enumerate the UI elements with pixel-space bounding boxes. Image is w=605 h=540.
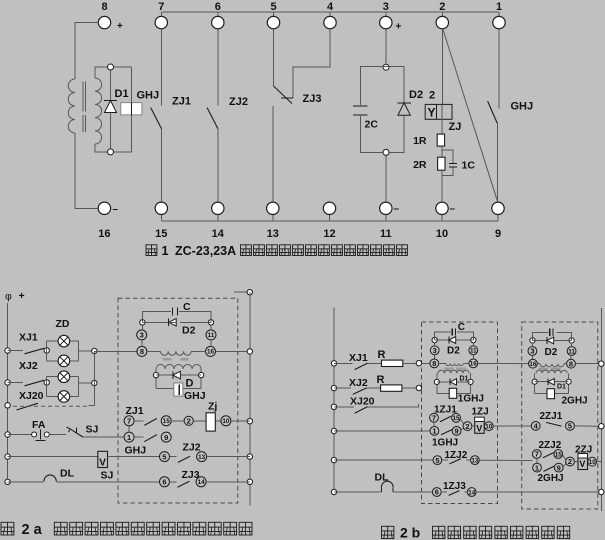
- svg-text:ZJ3: ZJ3: [303, 93, 322, 105]
- svg-text:C: C: [183, 301, 191, 313]
- svg-text:1: 1: [496, 1, 502, 13]
- svg-text:GHJ: GHJ: [511, 101, 534, 113]
- svg-text:1: 1: [162, 244, 169, 258]
- svg-text:ZJ: ZJ: [449, 121, 462, 133]
- svg-text:15: 15: [452, 415, 460, 422]
- svg-text:XJ2: XJ2: [19, 360, 38, 372]
- svg-text:10: 10: [222, 418, 230, 425]
- svg-text:5: 5: [568, 422, 572, 431]
- svg-text:14: 14: [198, 479, 206, 486]
- svg-text:XJ1: XJ1: [19, 332, 38, 344]
- svg-text:7: 7: [535, 450, 539, 459]
- svg-text:9: 9: [557, 463, 561, 472]
- svg-text:V: V: [476, 423, 482, 433]
- svg-text:3: 3: [433, 346, 437, 355]
- svg-text:DL: DL: [375, 472, 390, 484]
- svg-text:1: 1: [432, 427, 436, 436]
- svg-text:10: 10: [589, 459, 597, 466]
- svg-text:2R: 2R: [413, 159, 427, 171]
- svg-text:1R: 1R: [413, 135, 427, 147]
- svg-text:1GHJ: 1GHJ: [458, 394, 484, 405]
- svg-text:D2: D2: [447, 345, 460, 356]
- svg-text:7: 7: [158, 1, 164, 13]
- svg-text:2: 2: [429, 90, 435, 102]
- svg-text:16: 16: [207, 349, 215, 356]
- svg-text:2GHJ: 2GHJ: [562, 396, 588, 407]
- svg-text:ZJ1: ZJ1: [172, 96, 191, 108]
- svg-text:–: –: [394, 204, 400, 215]
- svg-text:–: –: [113, 204, 119, 215]
- svg-text:3: 3: [140, 331, 144, 340]
- svg-text:13: 13: [471, 457, 479, 464]
- svg-text:11: 11: [568, 348, 575, 355]
- svg-text:1C: 1C: [462, 160, 476, 172]
- svg-text:D1: D1: [460, 376, 469, 383]
- svg-text:ZJ1: ZJ1: [126, 405, 144, 417]
- svg-text:6: 6: [215, 1, 221, 13]
- svg-text:7: 7: [432, 414, 436, 423]
- svg-text:D1: D1: [557, 384, 566, 391]
- svg-text:13: 13: [198, 454, 206, 461]
- svg-text:16: 16: [529, 361, 537, 368]
- svg-text:R: R: [378, 349, 386, 361]
- svg-text:XJ20: XJ20: [19, 390, 44, 402]
- svg-text:2ZJ1: 2ZJ1: [540, 411, 563, 422]
- svg-text:3: 3: [530, 347, 534, 356]
- svg-text:16: 16: [98, 228, 110, 240]
- svg-text:GHJ: GHJ: [125, 445, 147, 457]
- svg-text:ZC-23,23A: ZC-23,23A: [175, 244, 236, 258]
- svg-text:+: +: [19, 290, 25, 302]
- svg-text:2: 2: [439, 1, 445, 13]
- svg-text:R: R: [377, 374, 385, 386]
- svg-text:XJ1: XJ1: [349, 352, 368, 364]
- svg-text:15: 15: [555, 451, 563, 458]
- svg-text:2: 2: [568, 457, 572, 466]
- svg-text:D2: D2: [545, 347, 558, 358]
- svg-text:6: 6: [435, 488, 439, 497]
- svg-text:4: 4: [327, 1, 334, 13]
- svg-text:15: 15: [163, 418, 171, 425]
- svg-text:10: 10: [436, 228, 448, 240]
- svg-text:13: 13: [267, 228, 279, 240]
- svg-text:D1: D1: [115, 88, 129, 100]
- svg-text:9: 9: [495, 228, 501, 240]
- svg-text:SJ: SJ: [86, 424, 99, 436]
- svg-text:15: 15: [155, 228, 167, 240]
- svg-text:5: 5: [270, 1, 276, 13]
- svg-text:Y: Y: [428, 105, 436, 119]
- svg-text:Zj: Zj: [208, 401, 217, 413]
- svg-text:5: 5: [162, 452, 166, 461]
- svg-text:2GHJ: 2GHJ: [538, 473, 564, 484]
- svg-text:11: 11: [380, 228, 392, 240]
- svg-text:14: 14: [468, 489, 476, 496]
- svg-text:C: C: [458, 322, 465, 333]
- svg-text:DL: DL: [60, 468, 75, 480]
- svg-text:1GHJ: 1GHJ: [432, 438, 458, 449]
- svg-text:XJ2: XJ2: [349, 377, 368, 389]
- svg-text:5: 5: [435, 456, 439, 465]
- svg-text:7: 7: [127, 417, 131, 426]
- svg-text:FA: FA: [32, 419, 46, 431]
- svg-text:2 b: 2 b: [400, 525, 420, 540]
- svg-text:SJ: SJ: [101, 470, 114, 482]
- svg-text:V: V: [99, 458, 106, 469]
- svg-text:2 a: 2 a: [22, 522, 43, 538]
- svg-text:9: 9: [455, 427, 459, 436]
- svg-text:D: D: [186, 378, 194, 390]
- svg-text:9: 9: [164, 433, 168, 442]
- svg-text:10: 10: [485, 423, 493, 430]
- svg-text:ZJ2: ZJ2: [229, 96, 248, 108]
- svg-text:GHJ: GHJ: [137, 90, 160, 102]
- svg-text:V: V: [579, 459, 585, 469]
- svg-text:11: 11: [470, 348, 477, 355]
- svg-text:6: 6: [162, 478, 166, 487]
- svg-text:11: 11: [208, 332, 215, 339]
- svg-text:XJ20: XJ20: [350, 396, 375, 408]
- svg-text:1ZJ3: 1ZJ3: [443, 481, 466, 492]
- svg-text:12: 12: [323, 228, 335, 240]
- svg-text:GHJ: GHJ: [184, 390, 206, 402]
- svg-text:8: 8: [101, 1, 107, 13]
- svg-text:1ZJ2: 1ZJ2: [445, 450, 468, 461]
- svg-text:+: +: [396, 22, 402, 33]
- svg-text:3: 3: [383, 1, 389, 13]
- svg-text:1: 1: [127, 433, 131, 442]
- svg-text:–: –: [450, 204, 456, 215]
- svg-text:D2: D2: [409, 89, 423, 101]
- svg-text:D2: D2: [182, 325, 196, 337]
- svg-text:16: 16: [470, 361, 478, 368]
- svg-text:+: +: [117, 21, 123, 32]
- svg-text:ZD: ZD: [56, 318, 70, 330]
- svg-text:14: 14: [212, 228, 225, 240]
- svg-text:2: 2: [187, 417, 191, 426]
- svg-text:2C: 2C: [365, 119, 379, 131]
- svg-text:2: 2: [465, 422, 469, 431]
- svg-text:ZJ2: ZJ2: [183, 441, 201, 453]
- svg-text:φ: φ: [5, 291, 12, 303]
- svg-text:8: 8: [140, 347, 144, 356]
- svg-text:1: 1: [535, 463, 539, 472]
- svg-text:1ZJ: 1ZJ: [472, 407, 489, 418]
- svg-text:8: 8: [432, 359, 436, 368]
- svg-text:8: 8: [569, 359, 573, 368]
